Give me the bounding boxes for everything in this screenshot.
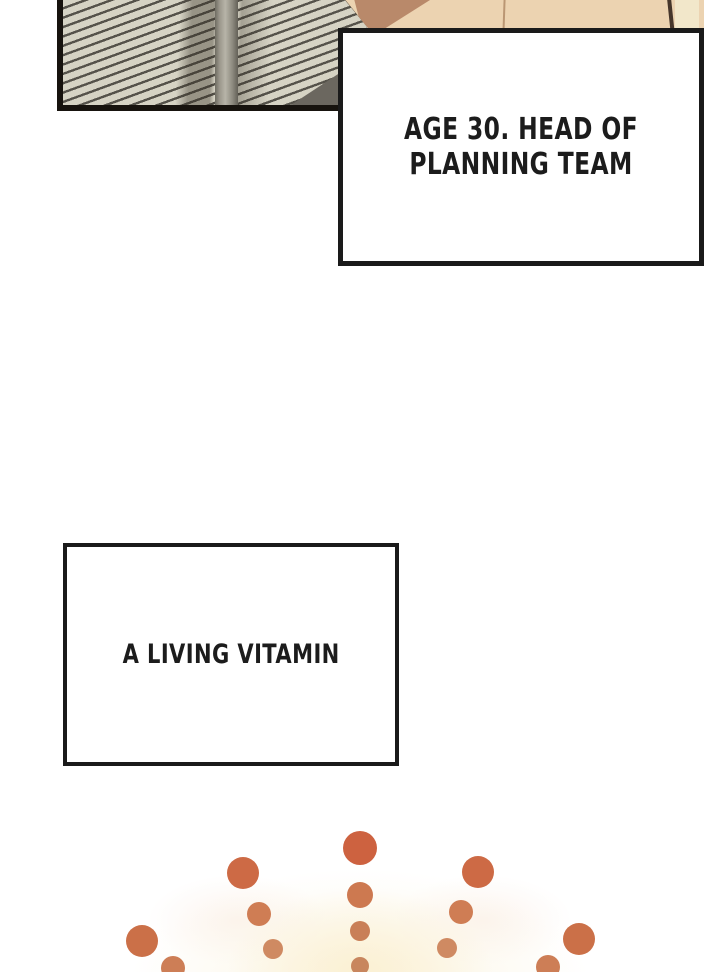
- sunburst-dot: [343, 831, 377, 865]
- window-frame-divider: [215, 0, 238, 105]
- sunburst-dot: [437, 938, 457, 958]
- comic-page: AGE 30. HEAD OF PLANNING TEAM A LIVING V…: [0, 0, 720, 972]
- sunburst-dot: [247, 902, 271, 926]
- caption-line: A LIVING VITAMIN: [122, 639, 339, 670]
- sunburst-dot: [462, 856, 494, 888]
- caption-box-vitamin: A LIVING VITAMIN: [63, 543, 399, 766]
- sunburst-dot: [126, 925, 158, 957]
- caption-line: PLANNING TEAM: [404, 147, 638, 182]
- caption-box-age: AGE 30. HEAD OF PLANNING TEAM: [338, 28, 704, 266]
- caption-text: A LIVING VITAMIN: [122, 639, 339, 670]
- sunburst-dot: [350, 921, 370, 941]
- sunburst-dot: [161, 956, 185, 972]
- caption-line: AGE 30. HEAD OF: [404, 112, 638, 147]
- sunburst-dot: [263, 939, 283, 959]
- sunburst-dot: [563, 923, 595, 955]
- sunburst-dot: [351, 957, 369, 972]
- sunburst-dot: [449, 900, 473, 924]
- sunburst-dot: [227, 857, 259, 889]
- window-blinds-panel: [57, 0, 367, 111]
- sunburst-glow: [0, 772, 720, 972]
- caption-text: AGE 30. HEAD OF PLANNING TEAM: [404, 112, 638, 182]
- sunburst-dot: [347, 882, 373, 908]
- sunburst-dot: [536, 955, 560, 972]
